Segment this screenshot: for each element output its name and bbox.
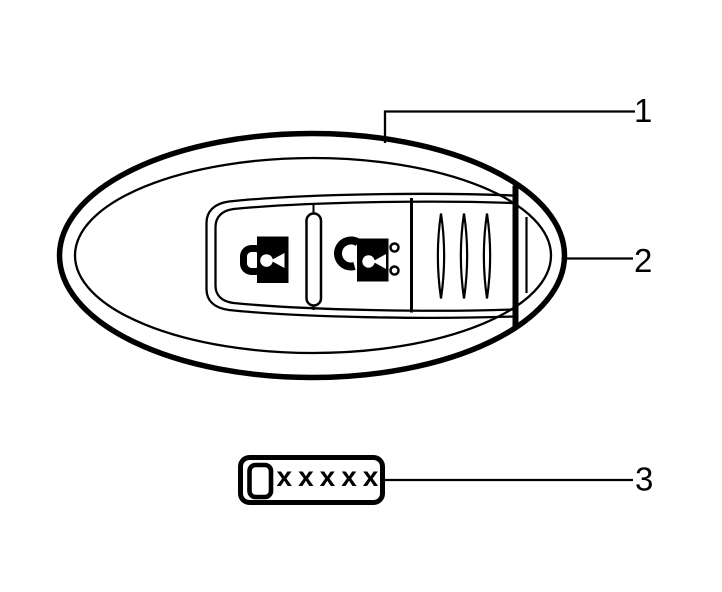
center-divider-pill bbox=[307, 214, 322, 306]
grip-ridge-2 bbox=[461, 214, 467, 299]
callout-3: 3 xxxxx bbox=[241, 458, 654, 503]
grip-ridge-3 bbox=[484, 214, 490, 299]
callout-1-number: 1 bbox=[634, 92, 652, 129]
id-label-text: xxxxx bbox=[277, 461, 385, 492]
callout-1: 1 bbox=[385, 92, 652, 143]
id-label-box: xxxxx bbox=[241, 458, 385, 503]
callout-2: 2 bbox=[563, 242, 652, 279]
indicator-dot-bottom bbox=[391, 267, 399, 275]
grip-ridge-1 bbox=[438, 214, 444, 299]
fob-body bbox=[60, 134, 565, 378]
callout-3-number: 3 bbox=[635, 461, 653, 498]
chip-outline-icon bbox=[250, 465, 272, 497]
indicator-dot-top bbox=[391, 244, 399, 252]
callout-1-leader-line bbox=[385, 112, 635, 144]
callout-2-number: 2 bbox=[634, 242, 652, 279]
keyfob-diagram: 1 2 3 xxxxx bbox=[0, 0, 722, 592]
